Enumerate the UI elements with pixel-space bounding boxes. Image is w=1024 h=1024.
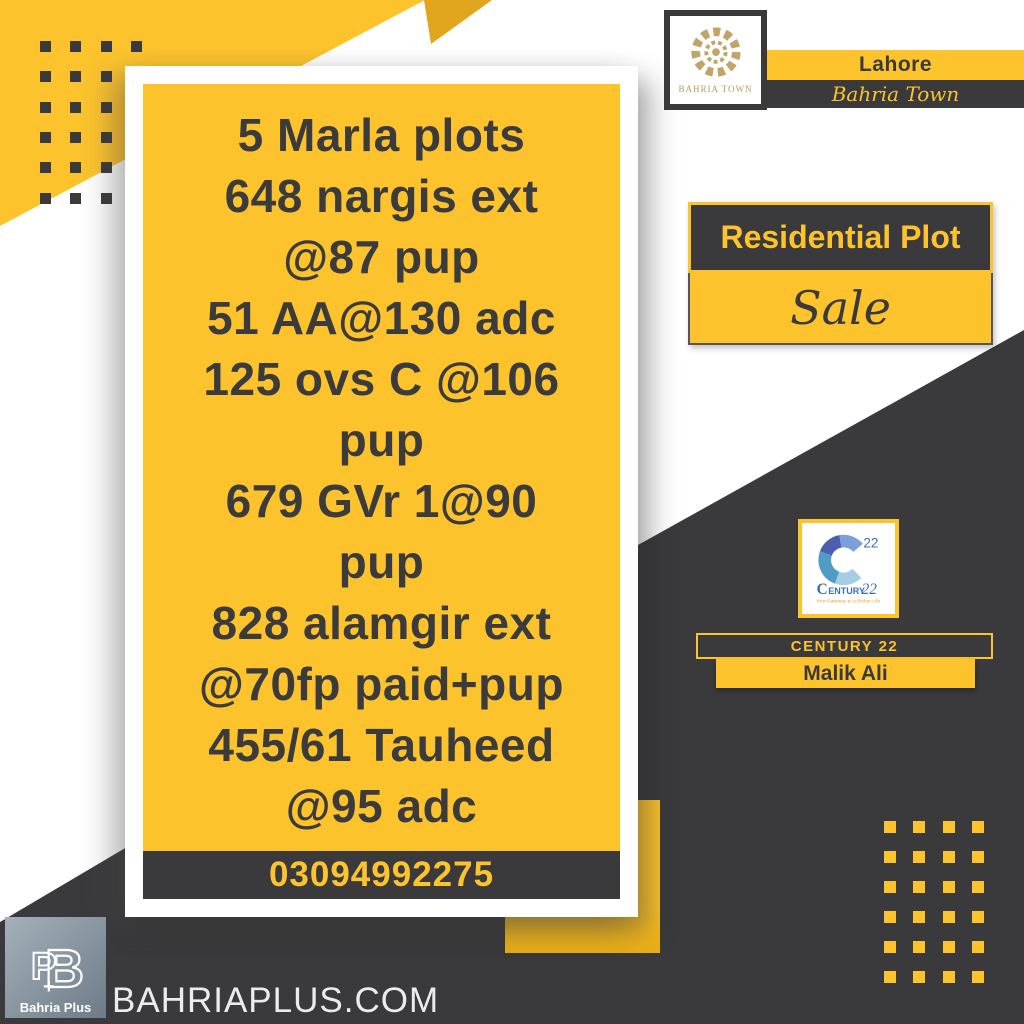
brand-script-bar: Bahria Town [767,80,1024,108]
dot [913,821,925,833]
plot-line: pup [339,532,425,593]
dot [101,41,112,52]
plot-line: 455/61 Tauheed [208,715,554,776]
plot-line: @70fp paid+pup [199,654,564,715]
dot [943,821,955,833]
phone-number: 03094992275 [143,851,620,899]
dot [884,821,896,833]
dot [943,971,955,983]
listing-type-box: Residential Plot Sale [688,202,993,345]
poster-canvas: 5 Marla plots 648 nargis ext @87 pup 51 … [0,0,1024,1024]
dot [70,193,81,204]
agent-name-bar: Malik Ali [716,659,975,688]
dot [913,911,925,923]
dot [943,881,955,893]
bahria-town-emblem-icon [687,27,745,83]
dot [40,41,51,52]
dot [40,132,51,143]
plot-line: 51 AA@130 adc [207,288,556,349]
century22-superscript: 22 [863,535,878,550]
dot [40,102,51,113]
bahriaplus-logo-caption: Bahria Plus [20,1000,92,1015]
dot [40,193,51,204]
listing-category: Residential Plot [688,202,993,273]
dot [101,102,112,113]
dot [101,71,112,82]
listing-card-inner: 5 Marla plots 648 nargis ext @87 pup 51 … [143,84,620,899]
century22-logo: 22 C ENTURY 22 Your Gateway to a Richer … [798,519,899,618]
bahriaplus-logo: B P + Bahria Plus [5,917,106,1018]
dot [70,71,81,82]
dot [972,941,984,953]
dot [913,881,925,893]
century22-tagline: Your Gateway to a Richer Life [815,598,880,604]
plot-line: 828 alamgir ext [212,593,552,654]
dot [884,941,896,953]
bahria-town-logo: BAHRIA TOWN [664,10,767,110]
dot [70,102,81,113]
century22-word-22: 22 [861,581,877,598]
listing-status: Sale [688,273,993,345]
dot [40,162,51,173]
dot [70,162,81,173]
century22-word-c: C [816,581,827,598]
dot [943,911,955,923]
century22-logo-icon: 22 C ENTURY 22 Your Gateway to a Richer … [804,524,894,614]
dot [972,851,984,863]
dot [101,162,112,173]
website-url: BAHRIAPLUS.COM [112,981,439,1021]
dot [884,881,896,893]
city-bar: Lahore [767,50,1024,80]
dot [884,911,896,923]
dot [131,41,142,52]
dot [884,851,896,863]
dot [972,971,984,983]
dot [40,71,51,82]
listing-card: 5 Marla plots 648 nargis ext @87 pup 51 … [125,66,638,917]
dot [972,821,984,833]
plot-line: 648 nargis ext [225,166,539,227]
plot-line: pup [339,410,425,471]
dot [101,193,112,204]
dot [70,132,81,143]
agency-company-bar: CENTURY 22 [696,633,993,659]
plot-line: 679 GVr 1@90 [226,471,538,532]
dot [101,132,112,143]
bahria-town-logo-caption: BAHRIA TOWN [679,84,753,94]
century22-word-rest: ENTURY [828,586,865,596]
dot [913,971,925,983]
plot-list: 5 Marla plots 648 nargis ext @87 pup 51 … [143,84,620,851]
plot-line: 5 Marla plots [238,105,526,166]
dot [913,851,925,863]
dot [884,971,896,983]
dot [70,41,81,52]
svg-text:+: + [43,976,55,998]
dot [943,851,955,863]
plot-line: @87 pup [283,227,480,288]
plot-line: 125 ovs C @106 [203,349,559,410]
dot [943,941,955,953]
bahriaplus-monogram-icon: B P + [20,930,92,1000]
dot [972,911,984,923]
dot [972,881,984,893]
dot [913,941,925,953]
plot-line: @95 adc [286,776,478,837]
